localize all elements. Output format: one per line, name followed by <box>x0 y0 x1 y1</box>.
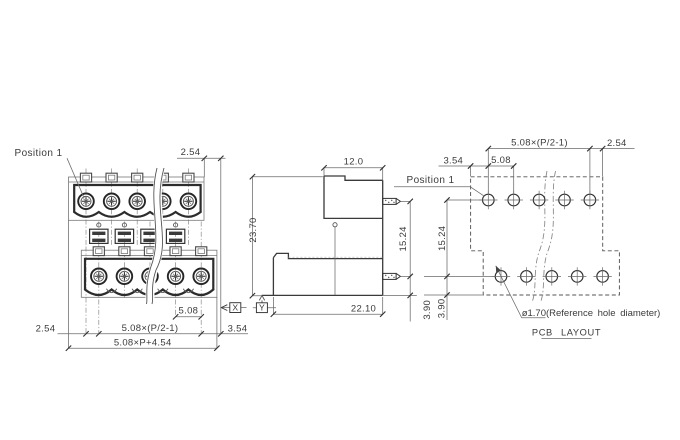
side-outline <box>262 176 383 295</box>
dim-left-margin: 3.54 <box>443 156 463 167</box>
detail-x-label: X <box>232 303 238 313</box>
pcb-layout-view: Position 1 5.08×(P/2-1) 2.54 3.54 5.08 1… <box>394 138 660 339</box>
extension-lines <box>252 167 416 321</box>
pcb-hole <box>543 267 561 285</box>
dim-top-width: 12.0 <box>344 157 364 168</box>
dim-stagger: 2.54 <box>607 138 627 149</box>
dim-pitch: 5.08 <box>179 306 199 317</box>
dim-edge: 3.90 <box>437 299 448 319</box>
dim-height: 23.70 <box>248 217 259 242</box>
terminal-screw <box>193 269 209 285</box>
dim-row-span: 15.24 <box>437 226 448 251</box>
dim-left-offset: 2.54 <box>36 324 56 335</box>
pcb-hole <box>568 267 586 285</box>
pcb-hole <box>505 191 523 209</box>
front-view: Position 1 2.54 5.08 X 2.54 5.08×(P/2-1)… <box>15 147 249 351</box>
terminal-screw <box>168 269 184 285</box>
pin-tab <box>132 173 143 182</box>
drawing-canvas: Position 1 2.54 5.08 X 2.54 5.08×(P/2-1)… <box>0 0 680 440</box>
dimension-ticks <box>250 165 413 317</box>
dim-pin-to-edge: 3.90 <box>422 300 433 320</box>
solder-pin <box>383 198 411 204</box>
latch-hole <box>333 223 337 227</box>
pin-tab <box>106 173 117 182</box>
pin-tab <box>93 247 104 256</box>
pcb-layout-title: PCB LAYOUT <box>532 328 601 338</box>
terminal-screw <box>117 269 133 285</box>
pin-tab <box>183 173 194 182</box>
break-mask <box>150 168 161 304</box>
hole-diameter-note: ø1.70(Reference hole diameter) <box>522 308 661 319</box>
pcb-hole <box>479 191 497 209</box>
position-1-label: Position 1 <box>15 148 63 159</box>
dim-pitch: 5.08 <box>491 155 511 166</box>
pin-tab <box>170 247 181 256</box>
terminal-screw <box>91 269 107 285</box>
dim-overall: 5.08×P+4.54 <box>114 337 172 348</box>
technical-drawing: Position 1 2.54 5.08 X 2.54 5.08×(P/2-1)… <box>0 0 680 440</box>
dim-span: 5.08×(P/2-1) <box>511 138 568 149</box>
pcb-hole <box>517 267 535 285</box>
pin-tab <box>196 247 207 256</box>
pin-tab <box>80 173 91 182</box>
dim-pin-span: 15.24 <box>398 226 409 251</box>
position-leader <box>470 187 484 196</box>
pcb-hole <box>593 267 611 285</box>
dim-span: 5.08×(P/2-1) <box>122 323 179 334</box>
detail-y-label: Y <box>259 303 265 313</box>
pin-tab <box>119 247 130 256</box>
pcb-hole <box>530 191 548 209</box>
dim-depth: 22.10 <box>351 303 376 314</box>
solder-pin <box>383 273 411 279</box>
dim-top-right: 2.54 <box>181 147 201 158</box>
pcb-hole <box>555 191 573 209</box>
break-line <box>533 171 548 301</box>
dim-right-margin: 3.54 <box>228 324 248 335</box>
pcb-hole <box>581 191 599 209</box>
side-view: 12.0 23.70 15.24 3.90 22.10 Y <box>248 157 433 322</box>
position-1-label: Position 1 <box>407 175 455 186</box>
dimension-ticks <box>444 146 605 298</box>
